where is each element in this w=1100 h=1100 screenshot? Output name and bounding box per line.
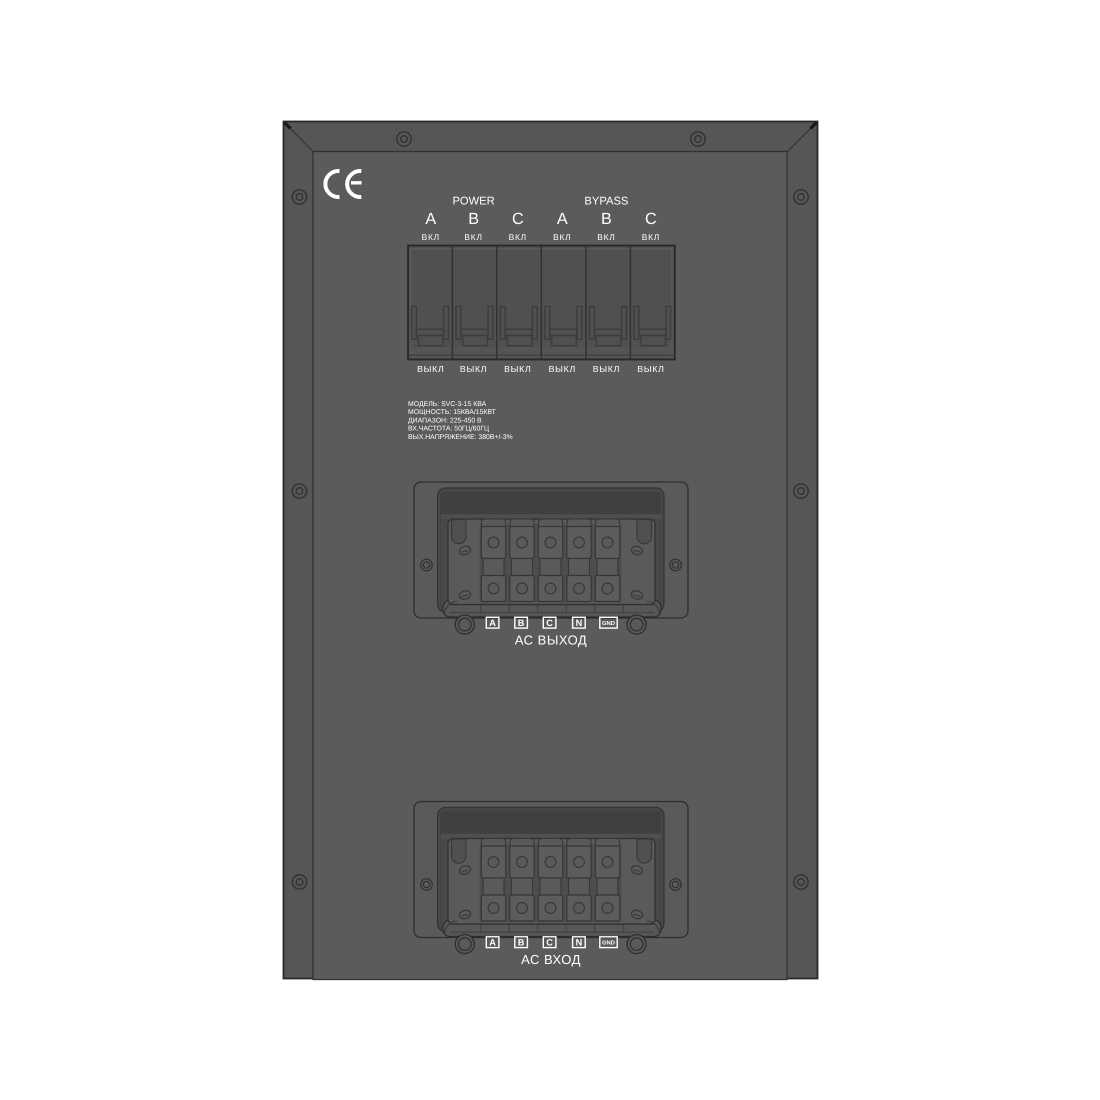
svg-text:POWER: POWER [452, 195, 494, 207]
svg-text:ВЫКЛ: ВЫКЛ [504, 364, 531, 374]
svg-text:ВЫКЛ: ВЫКЛ [549, 364, 576, 374]
svg-text:A: A [557, 210, 568, 228]
svg-text:B: B [468, 210, 479, 228]
svg-text:ВЫКЛ: ВЫКЛ [460, 364, 487, 374]
svg-text:ВЫКЛ: ВЫКЛ [637, 364, 664, 374]
svg-text:ВКЛ: ВКЛ [642, 232, 660, 242]
svg-text:BYPASS: BYPASS [584, 195, 628, 207]
svg-text:ВКЛ: ВКЛ [553, 232, 571, 242]
svg-text:ВХ.ЧАСТОТА: 50ГЦ/60ГЦ: ВХ.ЧАСТОТА: 50ГЦ/60ГЦ [408, 426, 489, 433]
svg-text:ВКЛ: ВКЛ [597, 232, 615, 242]
svg-text:АС ВХОД: АС ВХОД [521, 952, 581, 967]
svg-text:ДИАПАЗОН: 225-450 В: ДИАПАЗОН: 225-450 В [408, 417, 482, 424]
svg-text:АС ВЫХОД: АС ВЫХОД [515, 633, 587, 648]
svg-text:A: A [425, 210, 436, 228]
svg-text:ВЫХ.НАПРЯЖЕНИЕ: 380В+/-3%: ВЫХ.НАПРЯЖЕНИЕ: 380В+/-3% [408, 434, 513, 441]
svg-text:B: B [601, 210, 612, 228]
svg-text:ВЫКЛ: ВЫКЛ [417, 364, 444, 374]
svg-text:C: C [645, 210, 657, 228]
svg-text:ВКЛ: ВКЛ [509, 232, 527, 242]
svg-text:МОДЕЛЬ: SVC-3-15 КВА: МОДЕЛЬ: SVC-3-15 КВА [408, 401, 487, 408]
svg-text:ВКЛ: ВКЛ [422, 232, 440, 242]
svg-text:ВКЛ: ВКЛ [464, 232, 482, 242]
svg-text:ВЫКЛ: ВЫКЛ [593, 364, 620, 374]
svg-text:МОЩНОСТЬ: 15КВА/15КВТ: МОЩНОСТЬ: 15КВА/15КВТ [408, 409, 497, 416]
svg-text:C: C [512, 210, 524, 228]
